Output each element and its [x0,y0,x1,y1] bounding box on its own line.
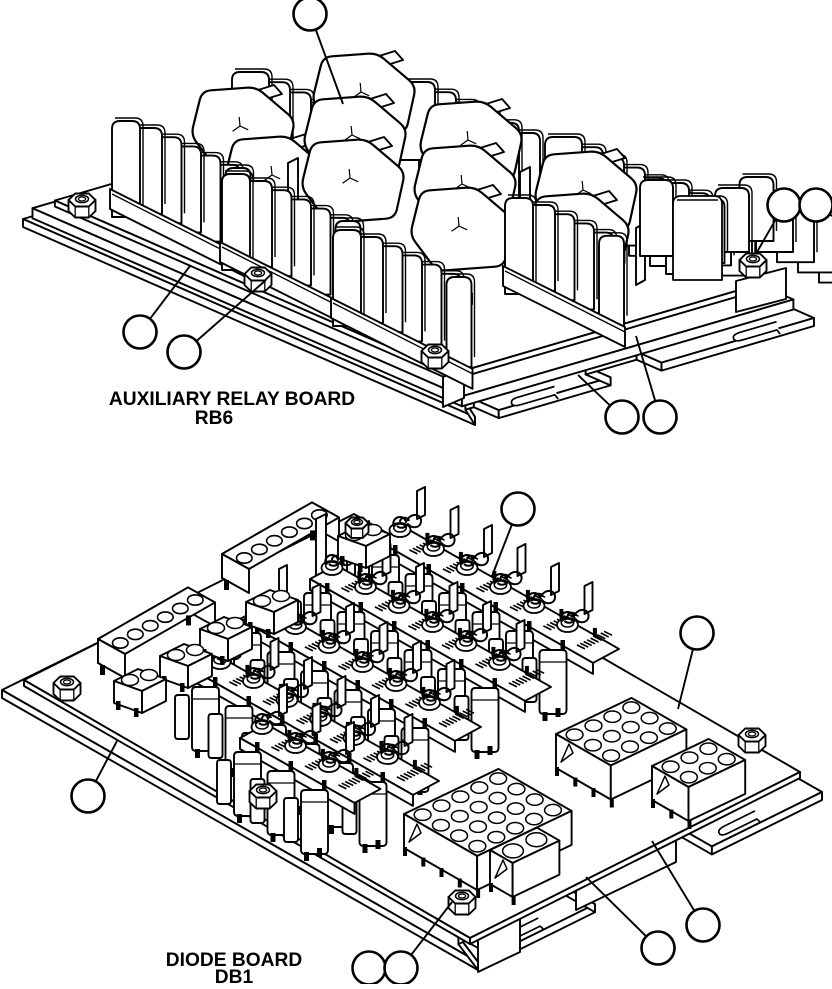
svg-text:DB1: DB1 [215,967,254,984]
svg-text:AUXILIARY RELAY BOARD: AUXILIARY RELAY BOARD [109,389,355,410]
svg-text:RB6: RB6 [195,408,233,429]
